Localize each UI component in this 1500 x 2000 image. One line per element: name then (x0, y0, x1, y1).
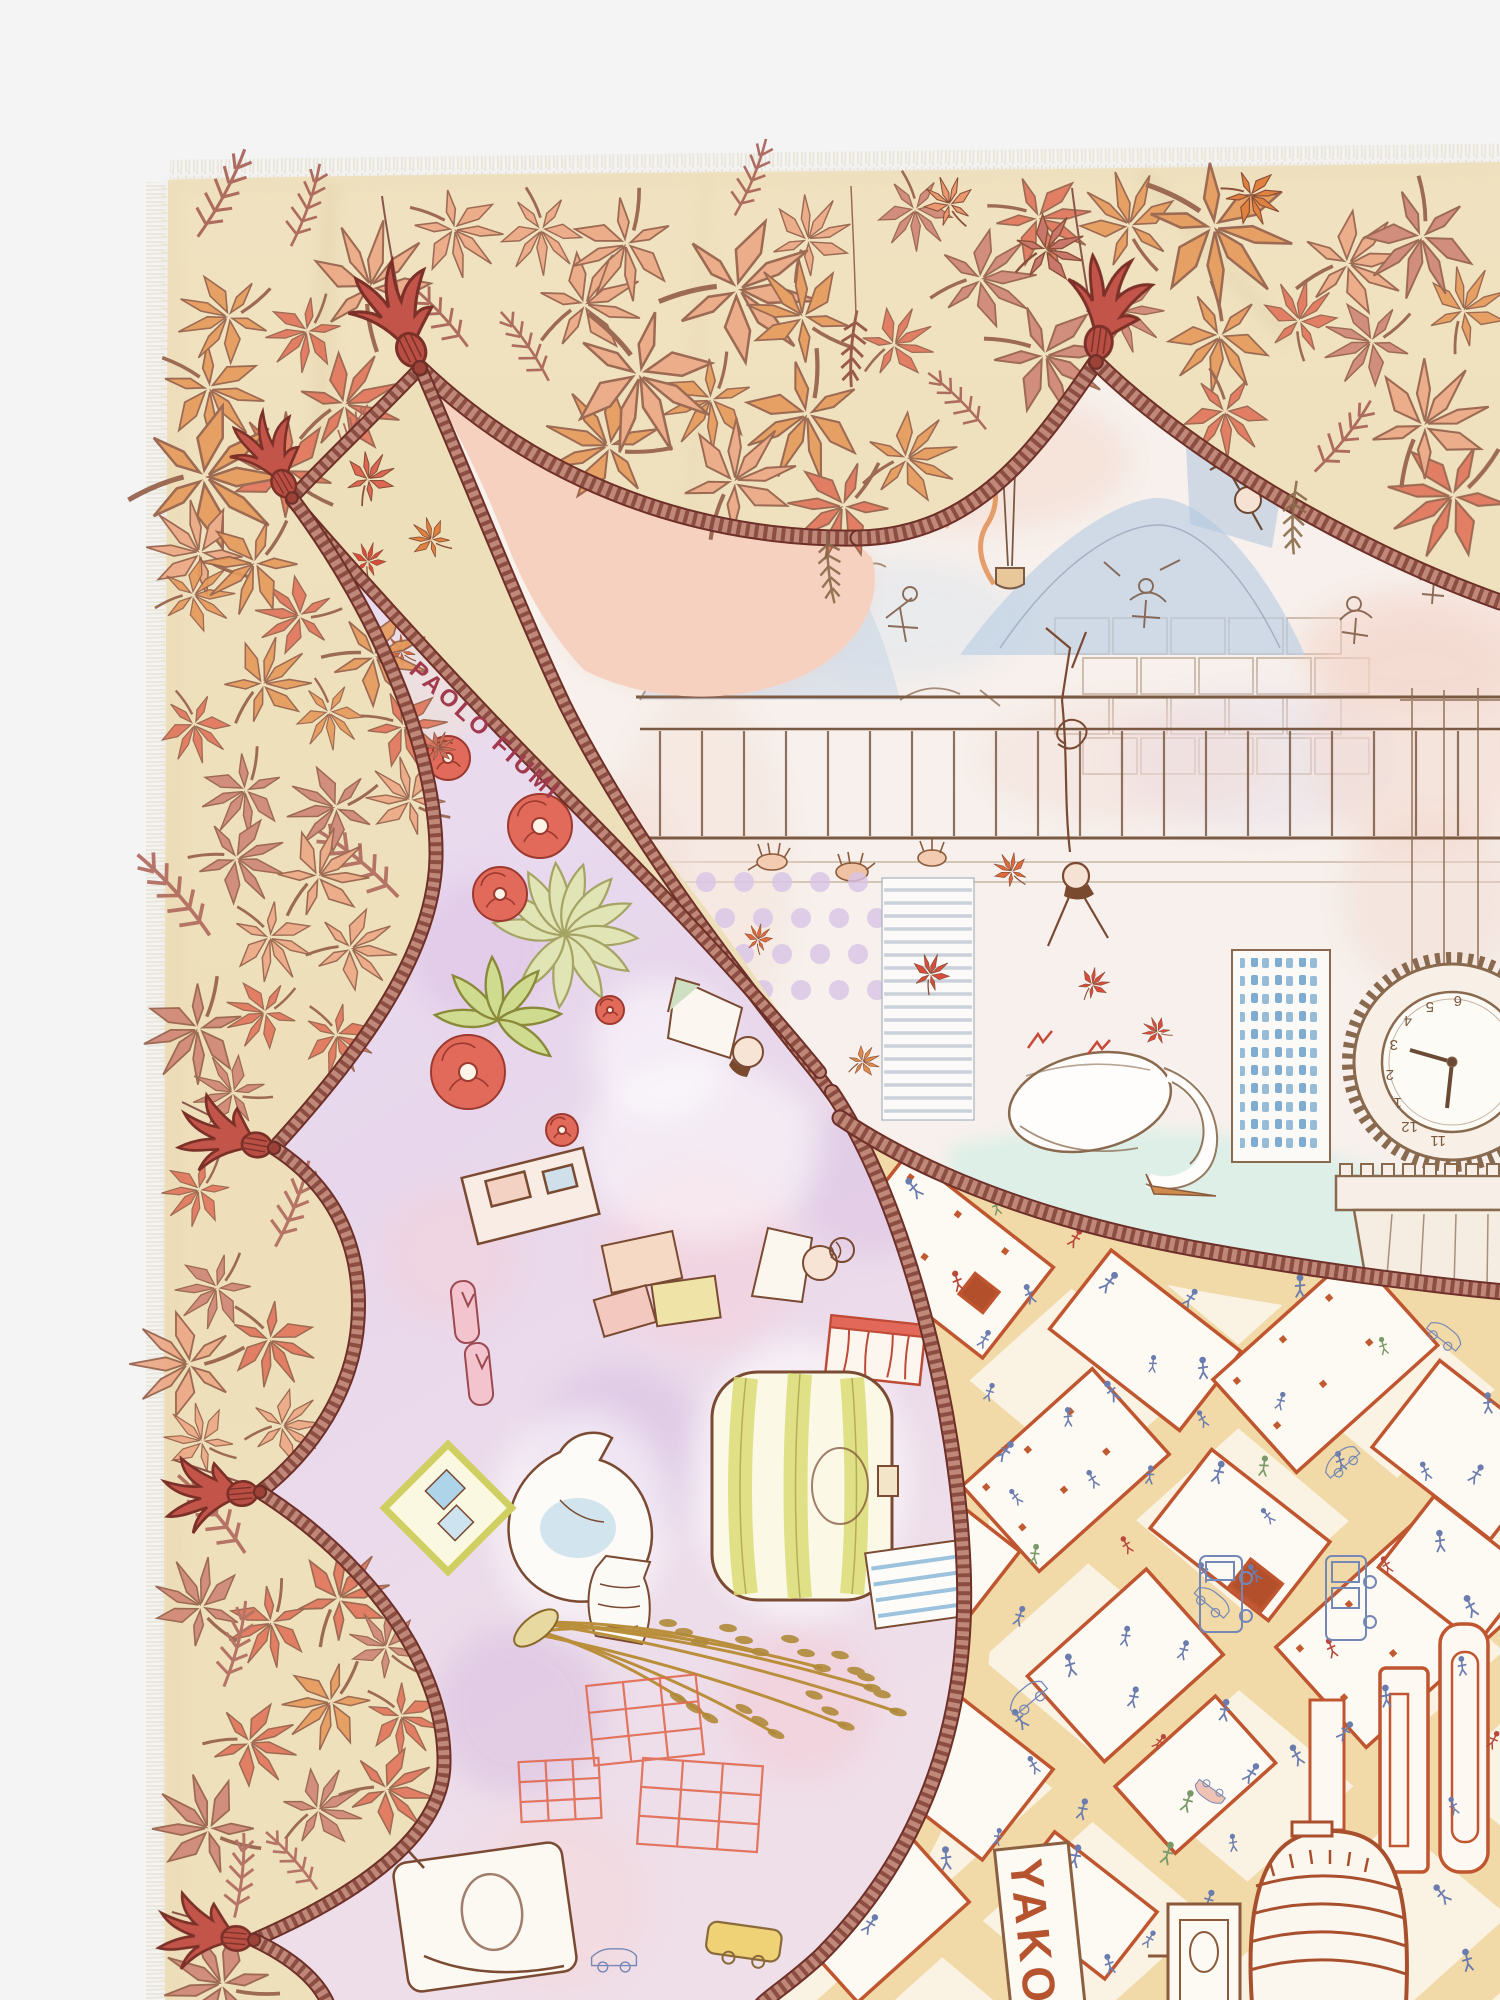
svg-text:6: 6 (1454, 992, 1462, 1009)
svg-text:3: 3 (1390, 1036, 1398, 1053)
svg-text:1: 1 (1394, 1094, 1402, 1111)
svg-text:5: 5 (1426, 998, 1434, 1015)
svg-text:12: 12 (1401, 1118, 1418, 1135)
svg-text:11: 11 (1430, 1132, 1446, 1149)
svg-text:2: 2 (1386, 1066, 1394, 1083)
svg-text:4: 4 (1404, 1012, 1412, 1029)
